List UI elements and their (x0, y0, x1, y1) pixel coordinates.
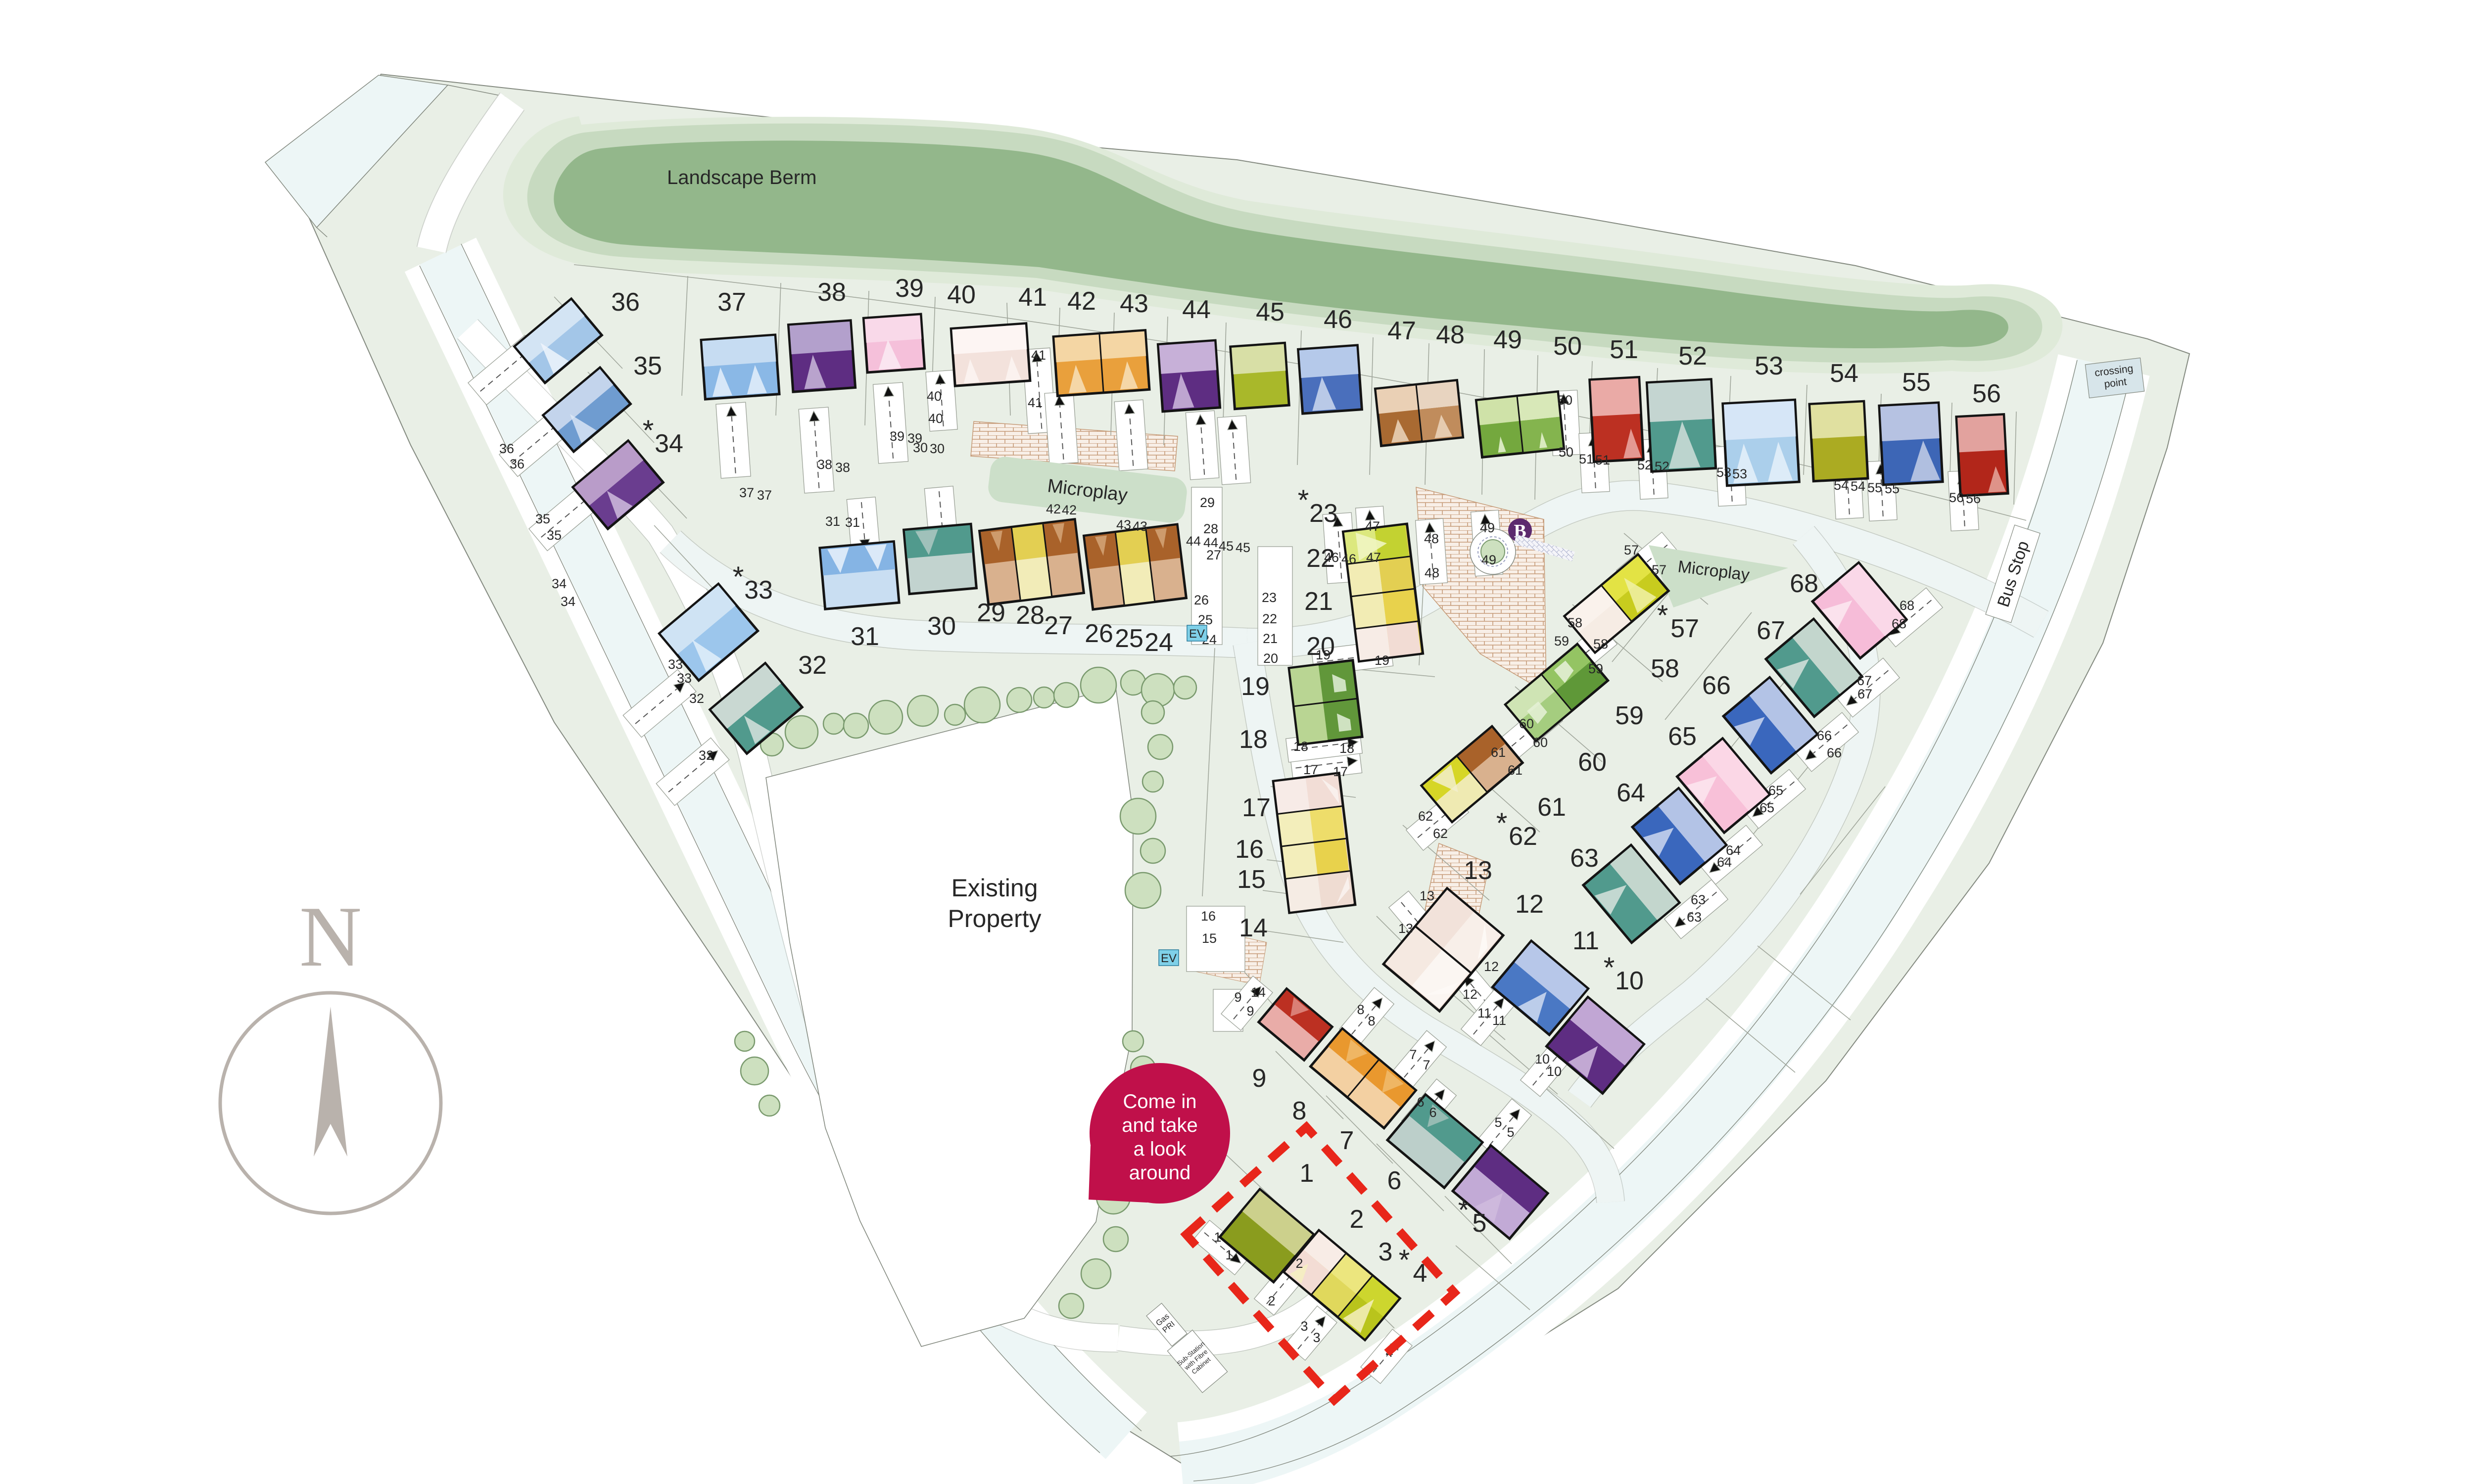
svg-text:52: 52 (1655, 459, 1669, 474)
svg-text:63: 63 (1570, 844, 1599, 873)
svg-text:66: 66 (1827, 745, 1842, 760)
svg-text:18: 18 (1239, 725, 1268, 754)
svg-text:23: 23 (1309, 499, 1338, 528)
svg-text:46: 46 (1341, 552, 1356, 566)
svg-text:19: 19 (1241, 672, 1270, 701)
svg-text:5: 5 (1473, 1209, 1487, 1238)
svg-text:5: 5 (1507, 1125, 1514, 1140)
svg-text:*: * (1604, 952, 1615, 984)
svg-text:*: * (1298, 484, 1309, 516)
svg-text:59: 59 (1554, 634, 1569, 649)
svg-text:61: 61 (1537, 793, 1566, 822)
svg-text:56: 56 (1972, 379, 2001, 408)
svg-text:16: 16 (1201, 909, 1216, 924)
svg-text:26: 26 (1085, 619, 1113, 648)
svg-text:55: 55 (1902, 368, 1931, 397)
svg-text:65: 65 (1768, 783, 1783, 798)
svg-text:58: 58 (1651, 654, 1679, 683)
svg-text:*: * (1458, 1194, 1470, 1226)
svg-text:51: 51 (1610, 335, 1638, 364)
svg-text:57: 57 (1652, 562, 1666, 577)
svg-text:57: 57 (1670, 614, 1699, 643)
svg-text:7: 7 (1423, 1058, 1430, 1072)
svg-text:EV: EV (1161, 952, 1177, 965)
svg-text:14: 14 (1251, 985, 1266, 1000)
svg-text:3: 3 (1379, 1238, 1393, 1266)
svg-text:44: 44 (1182, 295, 1211, 324)
svg-text:6: 6 (1417, 1095, 1424, 1110)
svg-text:52: 52 (1678, 342, 1707, 371)
svg-text:51: 51 (1595, 453, 1610, 467)
svg-text:33: 33 (668, 657, 683, 672)
svg-text:and take: and take (1122, 1114, 1197, 1136)
svg-text:42: 42 (1067, 287, 1096, 316)
svg-text:43: 43 (1133, 519, 1147, 534)
svg-text:18: 18 (1293, 739, 1308, 754)
svg-text:17: 17 (1303, 762, 1318, 777)
svg-text:9: 9 (1234, 990, 1241, 1005)
svg-text:37: 37 (717, 288, 746, 317)
svg-text:34: 34 (655, 429, 683, 458)
svg-text:45: 45 (1236, 540, 1250, 555)
svg-text:32: 32 (689, 691, 704, 706)
svg-text:around: around (1129, 1162, 1191, 1184)
svg-text:53: 53 (1755, 352, 1783, 380)
svg-text:67: 67 (1757, 616, 1785, 645)
svg-text:35: 35 (547, 528, 562, 543)
svg-text:3: 3 (1300, 1319, 1308, 1334)
svg-text:21: 21 (1263, 631, 1278, 646)
svg-text:54: 54 (1834, 478, 1849, 493)
svg-text:56: 56 (1966, 491, 1981, 506)
svg-text:40: 40 (928, 411, 943, 426)
svg-text:28: 28 (1203, 521, 1218, 536)
svg-text:54: 54 (1851, 479, 1865, 494)
svg-text:58: 58 (1568, 615, 1582, 630)
svg-text:6: 6 (1429, 1105, 1436, 1120)
svg-text:2: 2 (1268, 1294, 1275, 1308)
svg-text:52: 52 (1637, 458, 1652, 472)
svg-text:36: 36 (611, 288, 640, 317)
svg-text:29: 29 (977, 599, 1005, 627)
svg-text:54: 54 (1830, 359, 1858, 388)
svg-text:51: 51 (1579, 452, 1594, 466)
svg-text:47: 47 (1387, 317, 1416, 345)
svg-text:34: 34 (561, 594, 575, 609)
svg-text:13: 13 (1464, 856, 1492, 885)
svg-text:Existing: Existing (951, 874, 1038, 902)
svg-text:68: 68 (1790, 569, 1818, 598)
svg-text:47: 47 (1365, 519, 1380, 534)
svg-text:12: 12 (1515, 890, 1544, 919)
svg-text:42: 42 (1062, 503, 1077, 517)
svg-text:47: 47 (1366, 550, 1381, 565)
svg-text:39: 39 (890, 429, 904, 444)
svg-text:41: 41 (1031, 348, 1046, 363)
svg-text:62: 62 (1509, 822, 1537, 851)
svg-text:21: 21 (1304, 587, 1333, 616)
svg-text:30: 30 (930, 441, 945, 456)
svg-text:*: * (1399, 1244, 1410, 1276)
svg-text:41: 41 (1018, 283, 1047, 312)
svg-text:41: 41 (1028, 395, 1043, 410)
svg-text:31: 31 (845, 515, 860, 530)
svg-text:5: 5 (1494, 1115, 1502, 1130)
svg-text:30: 30 (927, 612, 956, 641)
svg-text:8: 8 (1357, 1002, 1364, 1017)
svg-text:27: 27 (1044, 611, 1073, 640)
svg-text:2: 2 (1350, 1205, 1364, 1234)
svg-text:3: 3 (1313, 1330, 1320, 1345)
svg-text:43: 43 (1116, 517, 1131, 532)
svg-text:63: 63 (1691, 892, 1706, 907)
svg-text:29: 29 (1200, 495, 1215, 510)
svg-text:10: 10 (1615, 967, 1644, 995)
svg-text:14: 14 (1239, 914, 1268, 942)
svg-text:59: 59 (1615, 701, 1644, 730)
svg-text:65: 65 (1760, 800, 1774, 815)
svg-text:22: 22 (1262, 611, 1277, 626)
svg-text:63: 63 (1687, 910, 1702, 925)
svg-text:40: 40 (927, 389, 942, 404)
svg-text:66: 66 (1702, 671, 1731, 700)
svg-text:*: * (1496, 807, 1508, 839)
svg-text:31: 31 (851, 622, 879, 651)
svg-text:61: 61 (1508, 763, 1522, 778)
svg-text:19: 19 (1375, 653, 1389, 668)
svg-text:11: 11 (1477, 1006, 1491, 1020)
svg-text:62: 62 (1418, 809, 1433, 824)
svg-text:46: 46 (1324, 305, 1352, 334)
svg-text:16: 16 (1235, 835, 1264, 864)
svg-text:48: 48 (1424, 531, 1439, 546)
svg-text:17: 17 (1242, 793, 1271, 822)
svg-text:60: 60 (1578, 748, 1607, 777)
svg-text:53: 53 (1732, 466, 1747, 481)
svg-text:18: 18 (1339, 741, 1354, 756)
svg-text:56: 56 (1949, 490, 1964, 505)
svg-text:57: 57 (1624, 543, 1639, 557)
svg-text:49: 49 (1481, 553, 1496, 567)
svg-text:9: 9 (1252, 1064, 1267, 1093)
svg-text:68: 68 (1892, 616, 1906, 631)
svg-text:15: 15 (1237, 865, 1266, 894)
svg-text:60: 60 (1519, 716, 1534, 731)
svg-text:1: 1 (1300, 1159, 1314, 1188)
svg-text:9: 9 (1246, 1004, 1254, 1019)
svg-text:62: 62 (1433, 826, 1448, 841)
svg-text:37: 37 (739, 485, 754, 500)
svg-text:28: 28 (1016, 601, 1045, 630)
svg-text:38: 38 (817, 457, 832, 472)
svg-text:53: 53 (1716, 465, 1731, 480)
svg-text:11: 11 (1492, 1013, 1506, 1028)
svg-text:Come in: Come in (1123, 1091, 1197, 1113)
svg-text:45: 45 (1256, 298, 1285, 326)
svg-text:65: 65 (1668, 722, 1697, 751)
svg-text:60: 60 (1533, 735, 1548, 750)
svg-text:8: 8 (1368, 1014, 1375, 1028)
svg-text:33: 33 (744, 576, 773, 604)
svg-text:50: 50 (1559, 445, 1573, 460)
svg-text:17: 17 (1333, 764, 1348, 779)
svg-text:8: 8 (1292, 1097, 1307, 1125)
svg-text:37: 37 (757, 488, 772, 503)
svg-text:27: 27 (1206, 548, 1221, 562)
svg-text:Landscape Berm: Landscape Berm (667, 167, 816, 188)
svg-text:26: 26 (1194, 593, 1209, 607)
svg-text:58: 58 (1593, 637, 1608, 651)
svg-text:35: 35 (633, 352, 662, 380)
svg-text:24: 24 (1144, 628, 1173, 657)
svg-text:61: 61 (1491, 745, 1506, 760)
svg-text:67: 67 (1857, 687, 1872, 701)
svg-text:36: 36 (510, 457, 524, 471)
svg-text:12: 12 (1484, 959, 1499, 974)
svg-text:*: * (643, 415, 654, 447)
svg-text:44: 44 (1186, 534, 1201, 549)
svg-text:32: 32 (699, 748, 714, 763)
svg-text:19: 19 (1316, 648, 1331, 662)
svg-text:32: 32 (798, 651, 827, 680)
svg-text:66: 66 (1817, 728, 1832, 743)
svg-text:33: 33 (677, 671, 692, 686)
svg-text:48: 48 (1425, 565, 1439, 580)
svg-text:13: 13 (1420, 888, 1434, 903)
svg-text:23: 23 (1262, 590, 1277, 605)
svg-text:49: 49 (1480, 520, 1495, 535)
svg-text:31: 31 (825, 514, 840, 529)
svg-text:2: 2 (1295, 1256, 1303, 1271)
svg-text:1: 1 (1225, 1248, 1233, 1262)
svg-text:1: 1 (1214, 1230, 1221, 1245)
svg-text:55: 55 (1867, 480, 1882, 495)
svg-text:34: 34 (552, 576, 567, 591)
svg-text:a look: a look (1134, 1138, 1187, 1160)
svg-text:59: 59 (1588, 661, 1603, 676)
svg-text:30: 30 (913, 440, 928, 455)
svg-text:43: 43 (1120, 289, 1148, 318)
svg-text:EV: EV (1189, 627, 1205, 641)
svg-text:68: 68 (1900, 598, 1914, 613)
svg-text:39: 39 (895, 274, 924, 303)
svg-text:Property: Property (948, 905, 1042, 932)
svg-text:10: 10 (1547, 1064, 1562, 1079)
svg-text:42: 42 (1046, 502, 1061, 516)
svg-text:*: * (1657, 600, 1668, 632)
svg-text:13: 13 (1398, 921, 1413, 936)
svg-text:49: 49 (1493, 325, 1522, 354)
svg-text:64: 64 (1617, 779, 1645, 807)
svg-text:11: 11 (1572, 927, 1599, 955)
svg-text:38: 38 (817, 278, 846, 307)
svg-text:25: 25 (1115, 624, 1143, 653)
svg-text:40: 40 (947, 280, 976, 309)
svg-text:6: 6 (1387, 1166, 1402, 1195)
svg-text:7: 7 (1340, 1126, 1354, 1155)
svg-text:N: N (299, 888, 362, 984)
svg-text:12: 12 (1463, 987, 1477, 1002)
svg-text:50: 50 (1553, 332, 1582, 361)
svg-text:67: 67 (1857, 673, 1872, 688)
svg-text:36: 36 (499, 441, 514, 456)
svg-text:50: 50 (1558, 393, 1572, 408)
svg-text:7: 7 (1409, 1047, 1417, 1062)
svg-text:*: * (733, 561, 744, 593)
svg-text:15: 15 (1202, 931, 1217, 946)
svg-text:55: 55 (1885, 481, 1900, 496)
svg-text:20: 20 (1263, 651, 1278, 666)
svg-text:35: 35 (535, 511, 550, 526)
svg-text:38: 38 (835, 460, 850, 475)
svg-text:46: 46 (1324, 550, 1339, 565)
svg-text:48: 48 (1436, 321, 1465, 349)
svg-text:64: 64 (1717, 855, 1732, 870)
